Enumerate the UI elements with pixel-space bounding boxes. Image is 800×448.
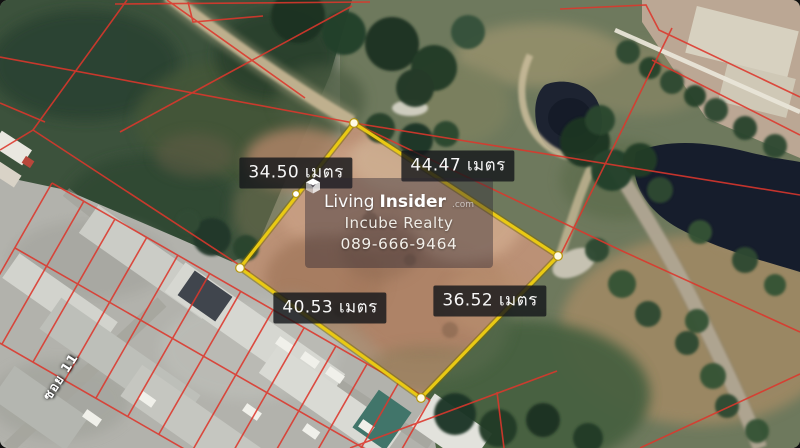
brand-insider: Insider <box>379 194 445 211</box>
watermark: LivingInsider.com Incube Realty 089-666-… <box>305 178 493 268</box>
brand-row: LivingInsider.com <box>324 194 474 211</box>
brand-tld: .com <box>452 201 474 210</box>
brand-living: Living <box>324 194 375 211</box>
phone-number: 089-666-9464 <box>340 235 457 253</box>
measurement-label-northeast: 44.47 เมตร <box>401 151 514 182</box>
agency-name: Incube Realty <box>345 214 454 232</box>
measurement-label-southwest: 40.53 เมตร <box>273 293 386 324</box>
measurement-label-southeast: 36.52 เมตร <box>433 286 546 317</box>
cube-logo-icon <box>305 178 321 194</box>
satellite-map-screenshot: 34.50 เมตร 44.47 เมตร 40.53 เมตร 36.52 เ… <box>0 0 800 448</box>
